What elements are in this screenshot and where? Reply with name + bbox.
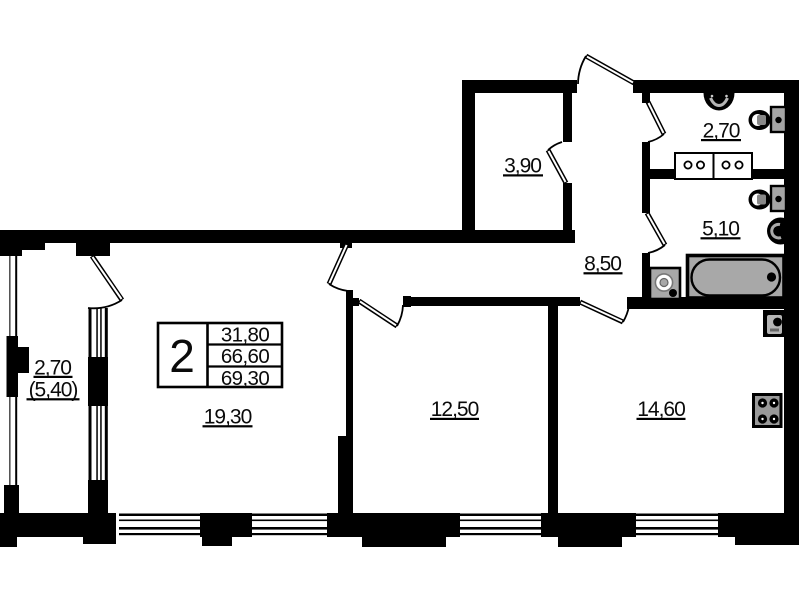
svg-text:19,30: 19,30 [204, 406, 252, 429]
svg-text:2: 2 [169, 330, 195, 382]
svg-text:12,50: 12,50 [431, 398, 479, 421]
svg-text:31,80: 31,80 [221, 324, 269, 347]
svg-text:3,90: 3,90 [504, 155, 541, 178]
svg-text:(5,40): (5,40) [29, 379, 78, 402]
svg-text:69,30: 69,30 [221, 367, 269, 390]
svg-text:14,60: 14,60 [637, 398, 685, 421]
svg-text:66,60: 66,60 [221, 345, 269, 368]
svg-text:8,50: 8,50 [584, 253, 621, 276]
svg-text:5,10: 5,10 [702, 218, 739, 241]
